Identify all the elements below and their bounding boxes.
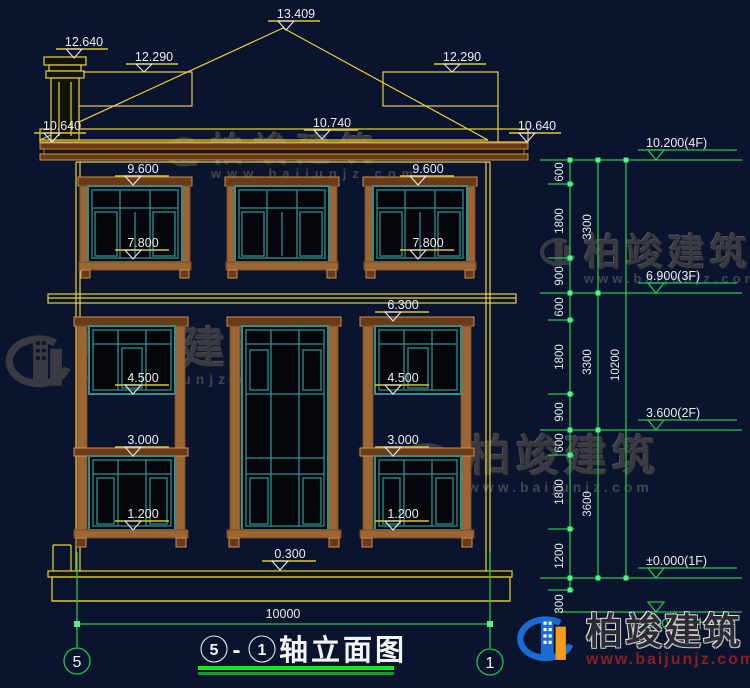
brand-name: 柏竣建筑 — [586, 613, 750, 650]
dim-value: 900 — [554, 402, 566, 421]
elev-value: 3.000 — [387, 433, 418, 447]
right-dimension-chains: 600 1800 900 600 1800 900 600 1800 1200 … — [540, 136, 742, 631]
axis-bubble-5: 5 — [64, 648, 90, 674]
mark-roof-right: 12.290 — [434, 50, 486, 72]
title-axis-right: 1 — [258, 642, 267, 659]
dim-value: 3600 — [582, 491, 594, 517]
window-3f-left — [78, 177, 192, 278]
elev-value: 1.200 — [387, 507, 418, 521]
title-axis-left: 5 — [210, 642, 219, 659]
third-floor-windows — [78, 177, 477, 278]
brand-logo-icon — [514, 610, 578, 674]
eave-cornice — [40, 143, 528, 160]
story-mark-1f: ±0.000(1F) — [638, 554, 737, 578]
brand-site: www.baijunjz.com — [586, 650, 750, 671]
elev-value: 12.290 — [135, 50, 173, 64]
title-text: 轴立面图 — [279, 633, 407, 667]
mark-chimney: 12.640 — [56, 35, 108, 58]
elev-value: 10.640 — [518, 119, 556, 133]
elev-value: 13.409 — [277, 7, 315, 21]
story-mark-2f: 3.600(2F) — [638, 406, 737, 430]
elev-value: 9.600 — [412, 162, 443, 176]
axis-number: 1 — [486, 655, 495, 672]
dim-total-width: 10000 — [266, 607, 301, 621]
elev-value: 12.640 — [65, 35, 103, 49]
elev-value: 6.300 — [387, 298, 418, 312]
plinth — [48, 571, 512, 601]
elevation-drawing: 13.409 12.640 12.290 12.290 10.640 10.74… — [0, 0, 750, 688]
dim-value: 600 — [554, 433, 566, 452]
story-elev: 10.200(4F) — [646, 136, 707, 150]
elev-value: 7.800 — [412, 236, 443, 250]
main-gable-roof — [40, 28, 488, 140]
roof — [40, 28, 528, 142]
title-underline-2 — [198, 672, 394, 675]
floor-band — [48, 294, 516, 303]
right-roof-band — [383, 72, 498, 106]
dim-value: 1800 — [554, 344, 566, 370]
mark-roof-left: 12.290 — [126, 50, 178, 72]
mark-eave-right: 10.640 — [509, 119, 561, 142]
drawing-title: 5 - 1 轴立面图 — [198, 633, 407, 675]
mark-eave-mid: 10.740 — [304, 116, 358, 139]
window-3f-right — [363, 177, 477, 278]
dim-value: 3300 — [582, 214, 594, 240]
story-elev: ±0.000(1F) — [646, 554, 707, 568]
window-column-middle — [227, 317, 341, 547]
story-elev: 3.600(2F) — [646, 406, 700, 420]
dim-value: 1200 — [554, 543, 566, 569]
mark-plinth: 0.300 — [262, 547, 316, 570]
elev-value: 0.300 — [274, 547, 305, 561]
axis-bubble-1: 1 — [477, 649, 503, 675]
brand-logo: 柏竣建筑 www.baijunjz.com — [514, 610, 750, 674]
dim-value: 900 — [554, 266, 566, 285]
elev-value: 10.640 — [43, 119, 81, 133]
dim-total-height: 10200 — [610, 349, 622, 381]
story-mark-4f: 10.200(4F) — [638, 136, 737, 160]
window-3f-middle — [225, 177, 339, 278]
story-elev: 6.900(3F) — [646, 269, 700, 283]
elev-value: 10.740 — [313, 116, 351, 130]
elev-value: 4.500 — [127, 371, 158, 385]
dim-value: 3300 — [582, 349, 594, 375]
axis-number: 5 — [73, 654, 82, 671]
title-dash: - — [233, 637, 244, 664]
elev-value: 12.290 — [443, 50, 481, 64]
dim-value: 600 — [554, 297, 566, 316]
title-underline — [198, 666, 394, 670]
dim-value: 1800 — [554, 479, 566, 505]
cad-elevation-canvas: 柏竣建筑 www.baijunjz.com 柏竣建筑 www.baijunjz.… — [0, 0, 750, 688]
left-roof-band — [76, 72, 192, 106]
elev-value: 7.800 — [127, 236, 158, 250]
elev-value: 4.500 — [387, 371, 418, 385]
dim-value: 600 — [554, 162, 566, 181]
elev-value: 3.000 — [127, 433, 158, 447]
elev-value: 1.200 — [127, 507, 158, 521]
story-mark-3f: 6.900(3F) — [638, 269, 737, 293]
elev-value: 9.600 — [127, 162, 158, 176]
mark-peak: 13.409 — [268, 7, 320, 30]
dim-value: 1800 — [554, 208, 566, 234]
